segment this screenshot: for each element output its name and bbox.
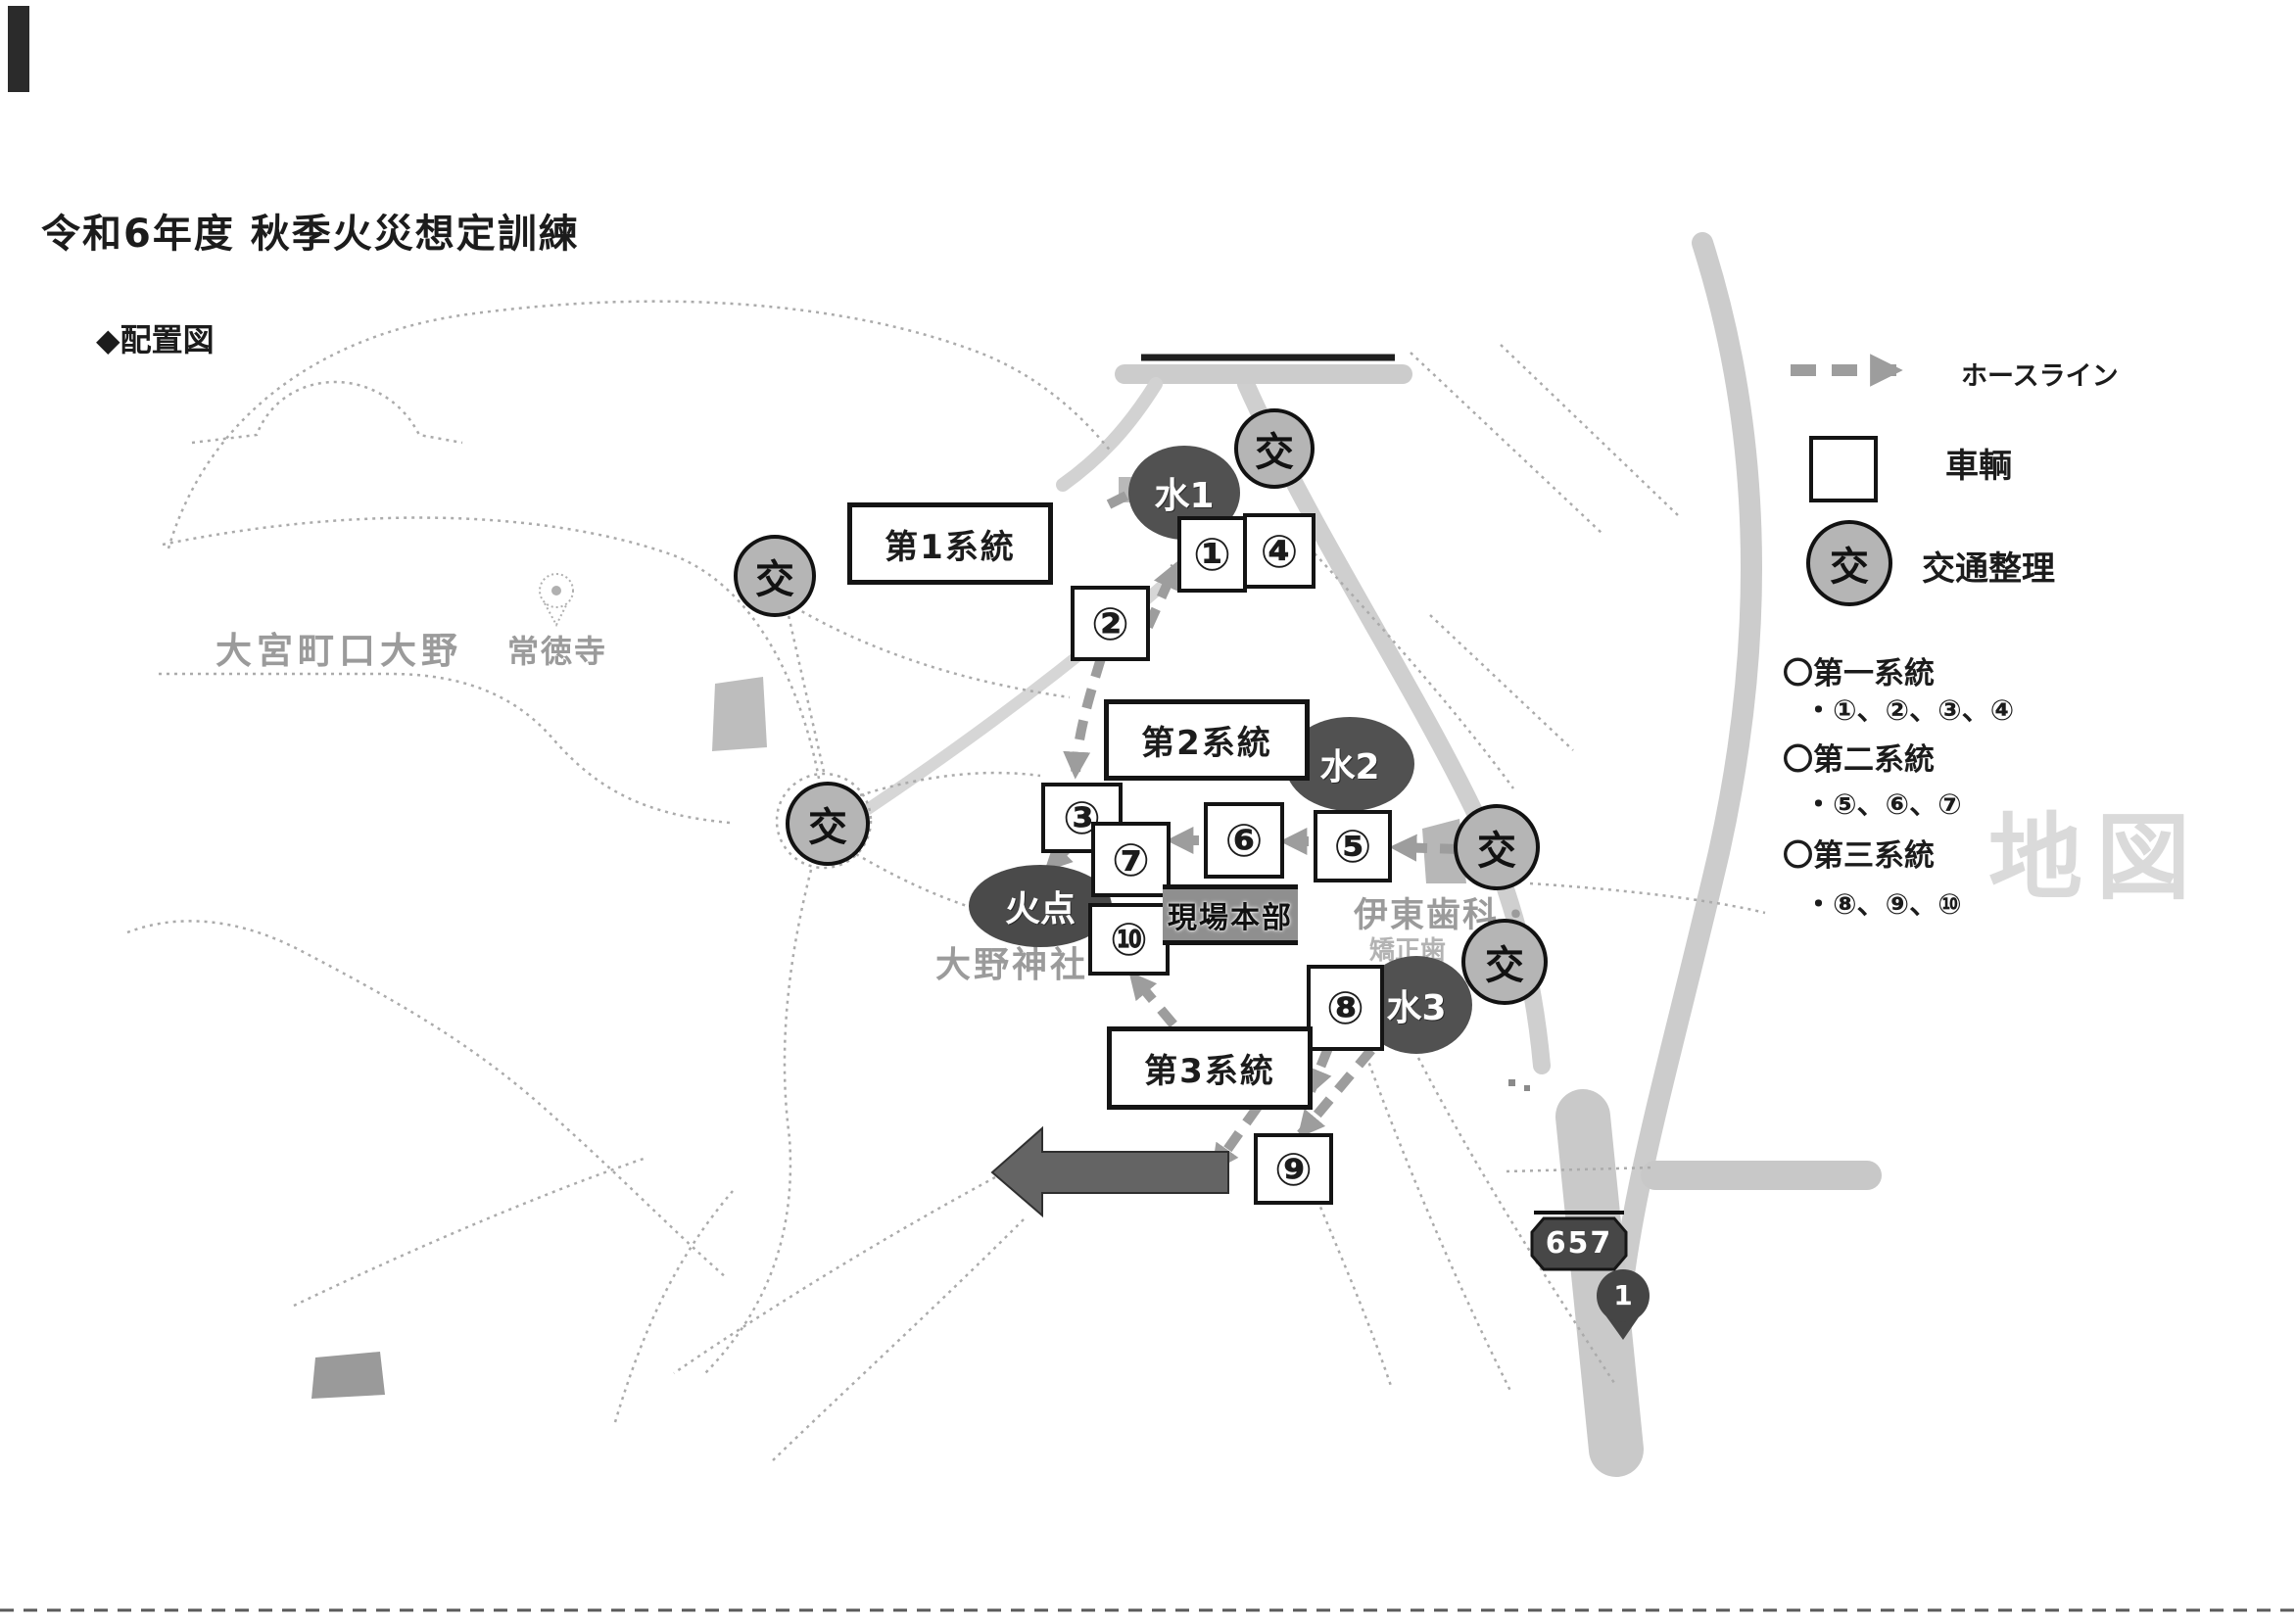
road-dotted xyxy=(127,921,727,1278)
vehicle-square-9: ⑨ xyxy=(1254,1133,1333,1205)
road-dotted xyxy=(705,870,811,1373)
vehicle-square-5: ⑤ xyxy=(1314,810,1392,882)
pin-tail xyxy=(545,603,567,625)
map-blocks-layer xyxy=(311,477,1530,1399)
section-heading: ◆配置図 xyxy=(96,315,215,360)
legend-vehicle-square xyxy=(1809,436,1878,502)
map-label-temple: 常徳寺 xyxy=(507,627,607,672)
road-dotted xyxy=(1366,1056,1510,1391)
map-label-district: 大宮町口大野 xyxy=(215,621,462,674)
legend-hose-line-label: ホースライン xyxy=(1961,355,2119,393)
road-dotted xyxy=(1430,615,1573,750)
road-dotted xyxy=(782,599,1070,697)
field-hq-box: 現場本部 xyxy=(1163,884,1298,945)
vehicle-square-8: ⑧ xyxy=(1307,965,1384,1051)
legend-traffic-control-label: 交通整理 xyxy=(1922,542,2055,590)
road-dotted xyxy=(1317,1200,1391,1386)
road-dotted xyxy=(772,1219,1024,1461)
vehicle-square-10: ⑩ xyxy=(1088,903,1170,976)
system1-list-name: 〇第一系統 xyxy=(1783,648,1935,692)
traffic-circle-east-upper: 交 xyxy=(1454,804,1540,890)
legend-traffic-circle: 交 xyxy=(1806,520,1892,606)
map-dot xyxy=(1524,1085,1530,1091)
road-dotted xyxy=(1501,345,1680,517)
map-pin-number: 1 xyxy=(1606,1279,1640,1311)
hose-line xyxy=(1311,1048,1328,1091)
system2-list-name: 〇第二系統 xyxy=(1783,735,1935,779)
system1-list-units: ・①、②、③、④ xyxy=(1804,688,2014,729)
system3-list-units: ・⑧、⑨、⑩ xyxy=(1804,881,1962,923)
system3-list-name: 〇第三系統 xyxy=(1783,831,1935,875)
legend-vehicle-label: 車輌 xyxy=(1945,439,2012,487)
road-dotted xyxy=(1530,883,1765,913)
traffic-circle-east-lower: 交 xyxy=(1461,919,1548,1005)
route-badge-number: 657 xyxy=(1532,1226,1626,1261)
temple-pin-icon xyxy=(540,574,573,625)
pin-dot xyxy=(551,586,561,596)
system1-box: 第1系統 xyxy=(847,502,1053,585)
traffic-circle-west-upper: 交 xyxy=(734,535,816,617)
map-dot xyxy=(1508,1079,1515,1086)
hose-line xyxy=(1132,976,1173,1024)
road-dotted xyxy=(159,674,730,823)
road-dotted xyxy=(615,1191,733,1422)
vehicle-square-6: ⑥ xyxy=(1204,802,1284,879)
big-left-arrow xyxy=(992,1128,1228,1215)
system2-box: 第2系統 xyxy=(1104,699,1310,781)
system2-list-units: ・⑤、⑥、⑦ xyxy=(1804,782,1962,823)
vehicle-square-2: ② xyxy=(1071,586,1150,661)
vehicle-square-7: ⑦ xyxy=(1091,822,1171,897)
system3-box: 第3系統 xyxy=(1107,1026,1313,1110)
traffic-circle-west-lower: 交 xyxy=(786,782,870,866)
scan-artifact-bar xyxy=(8,6,29,92)
vehicle-square-1: ① xyxy=(1177,516,1247,593)
road-dotted xyxy=(1411,353,1602,534)
hose-line xyxy=(1076,658,1101,774)
scanned-deployment-map-page: 令和6年度 秋季火災想定訓練 ◆配置図 ホースライン 車輌 交 交通整理 〇第一… xyxy=(0,0,2296,1620)
road-dotted xyxy=(192,382,462,443)
map-block xyxy=(311,1352,385,1399)
traffic-circle-north: 交 xyxy=(1234,408,1315,489)
map-block xyxy=(712,677,767,751)
road-dotted xyxy=(294,1158,646,1306)
vehicle-square-4: ④ xyxy=(1243,513,1315,589)
page-title: 令和6年度 秋季火災想定訓練 xyxy=(41,202,580,259)
map-watermark: 地図 xyxy=(1988,782,2204,918)
